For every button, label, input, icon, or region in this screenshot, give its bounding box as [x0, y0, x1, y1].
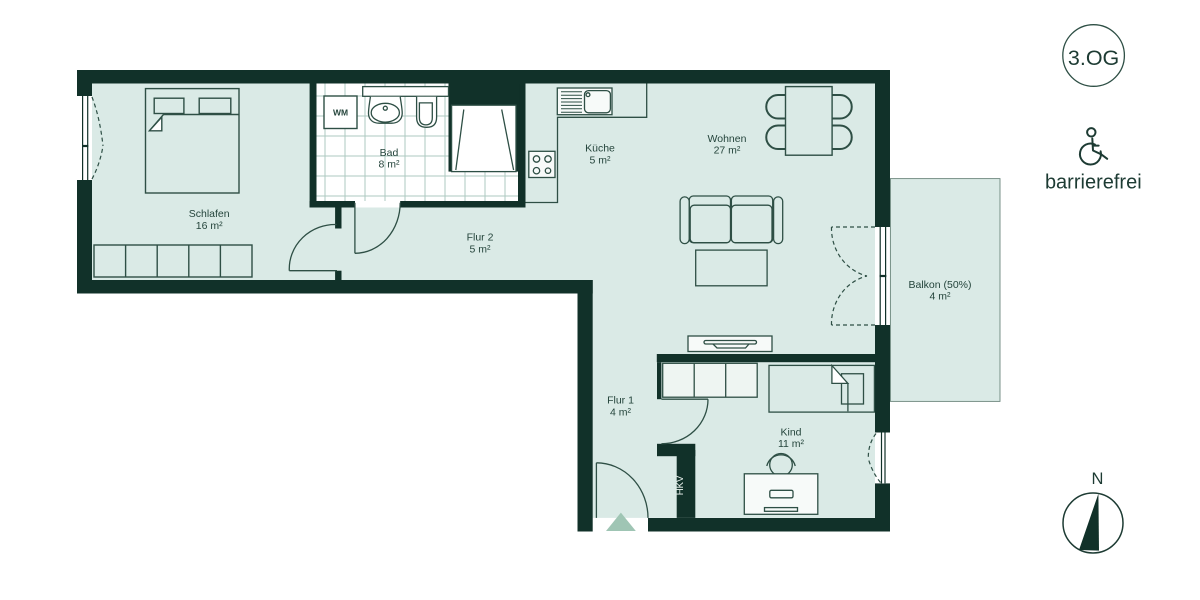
svg-text:WM: WM [333, 108, 348, 118]
svg-text:barrierefrei: barrierefrei [1045, 172, 1142, 194]
svg-text:3.OG: 3.OG [1068, 46, 1119, 70]
svg-text:4 m²: 4 m² [930, 291, 952, 303]
svg-text:4 m²: 4 m² [610, 407, 632, 419]
svg-text:16 m²: 16 m² [196, 220, 223, 232]
svg-text:Flur 2: Flur 2 [467, 232, 494, 244]
svg-text:Schlafen: Schlafen [189, 208, 230, 220]
svg-text:11 m²: 11 m² [778, 438, 805, 450]
svg-text:8 m²: 8 m² [379, 159, 401, 171]
svg-text:5 m²: 5 m² [470, 244, 492, 256]
svg-text:N: N [1092, 470, 1104, 488]
svg-text:Bad: Bad [380, 147, 399, 159]
svg-text:Küche: Küche [585, 143, 615, 155]
svg-text:Balkon (50%): Balkon (50%) [908, 279, 971, 291]
svg-text:HKV: HKV [675, 475, 686, 495]
svg-text:Flur 1: Flur 1 [607, 395, 634, 407]
svg-text:27 m²: 27 m² [714, 145, 741, 157]
svg-text:Kind: Kind [780, 427, 801, 439]
svg-text:5 m²: 5 m² [590, 155, 612, 167]
svg-text:Wohnen: Wohnen [708, 133, 747, 145]
